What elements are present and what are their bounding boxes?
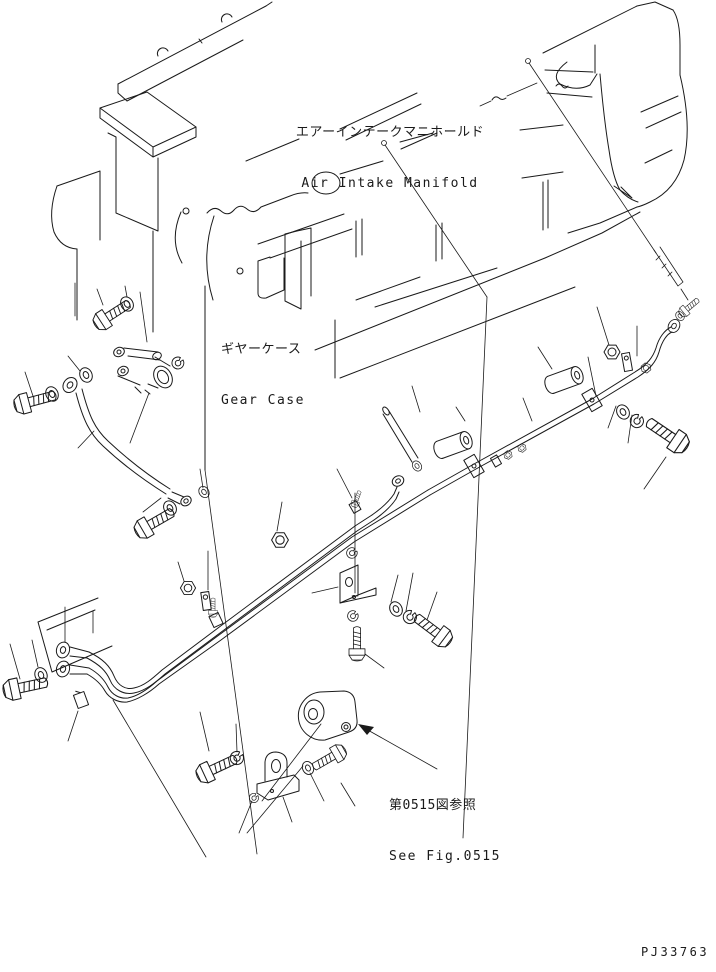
callout-air-intake-jp: エアーインテークマニホールド bbox=[287, 124, 493, 141]
washers bbox=[33, 295, 686, 777]
callout-see-fig: 第0515図参照 See Fig.0515 bbox=[389, 763, 501, 882]
banjo-eye bbox=[55, 641, 72, 660]
bolt bbox=[309, 742, 349, 775]
banjo-eye bbox=[55, 660, 72, 679]
washer bbox=[161, 499, 179, 518]
spacer bbox=[432, 430, 475, 460]
drawing-number: PJ33763 bbox=[641, 945, 709, 959]
bolt bbox=[193, 750, 240, 786]
callout-air-intake-en: Air Intake Manifold bbox=[287, 175, 493, 192]
banjo-bolt bbox=[677, 295, 702, 319]
upper-pipe bbox=[60, 375, 193, 508]
bolts bbox=[1, 295, 702, 786]
bottom-bracket bbox=[257, 752, 299, 800]
clip bbox=[170, 355, 185, 370]
washer bbox=[410, 459, 423, 473]
bolt bbox=[349, 627, 365, 661]
callout-gear-case-en: Gear Case bbox=[221, 392, 305, 409]
nut bbox=[180, 581, 195, 594]
callout-gear-case: ギヤーケース Gear Case bbox=[221, 307, 305, 426]
callout-air-intake-manifold: エアーインテークマニホールド Air Intake Manifold bbox=[287, 90, 493, 209]
engine-lower-face-edges bbox=[315, 212, 640, 378]
nut bbox=[272, 533, 289, 547]
union-nut bbox=[517, 443, 528, 453]
bolt bbox=[131, 503, 178, 542]
washer bbox=[614, 403, 632, 422]
banjo-eye bbox=[60, 375, 80, 396]
washer bbox=[77, 366, 94, 385]
nut bbox=[604, 345, 620, 359]
washer bbox=[197, 484, 212, 499]
circular-housing bbox=[298, 691, 357, 740]
washer bbox=[674, 310, 686, 322]
long-stud-upper bbox=[526, 59, 689, 301]
callout-gear-case-jp: ギヤーケース bbox=[221, 341, 305, 358]
spacer bbox=[543, 365, 586, 395]
bolt bbox=[641, 412, 693, 457]
mount-panel bbox=[38, 598, 112, 672]
fitting-block bbox=[112, 346, 176, 394]
vent-tube bbox=[381, 406, 418, 488]
clip bbox=[346, 610, 359, 623]
callout-see-fig-jp: 第0515図参照 bbox=[389, 797, 501, 814]
bolt bbox=[1, 672, 50, 702]
washer bbox=[387, 600, 405, 619]
spacers bbox=[432, 365, 586, 460]
clip bbox=[346, 547, 358, 559]
banjo-eye bbox=[666, 317, 682, 334]
parts-diagram-page: エアーインテークマニホールド Air Intake Manifold ギヤーケー… bbox=[0, 0, 716, 972]
rear-housing-outline bbox=[492, 2, 687, 233]
callout-see-fig-en: See Fig.0515 bbox=[389, 848, 501, 865]
clamp-screw bbox=[350, 490, 363, 509]
